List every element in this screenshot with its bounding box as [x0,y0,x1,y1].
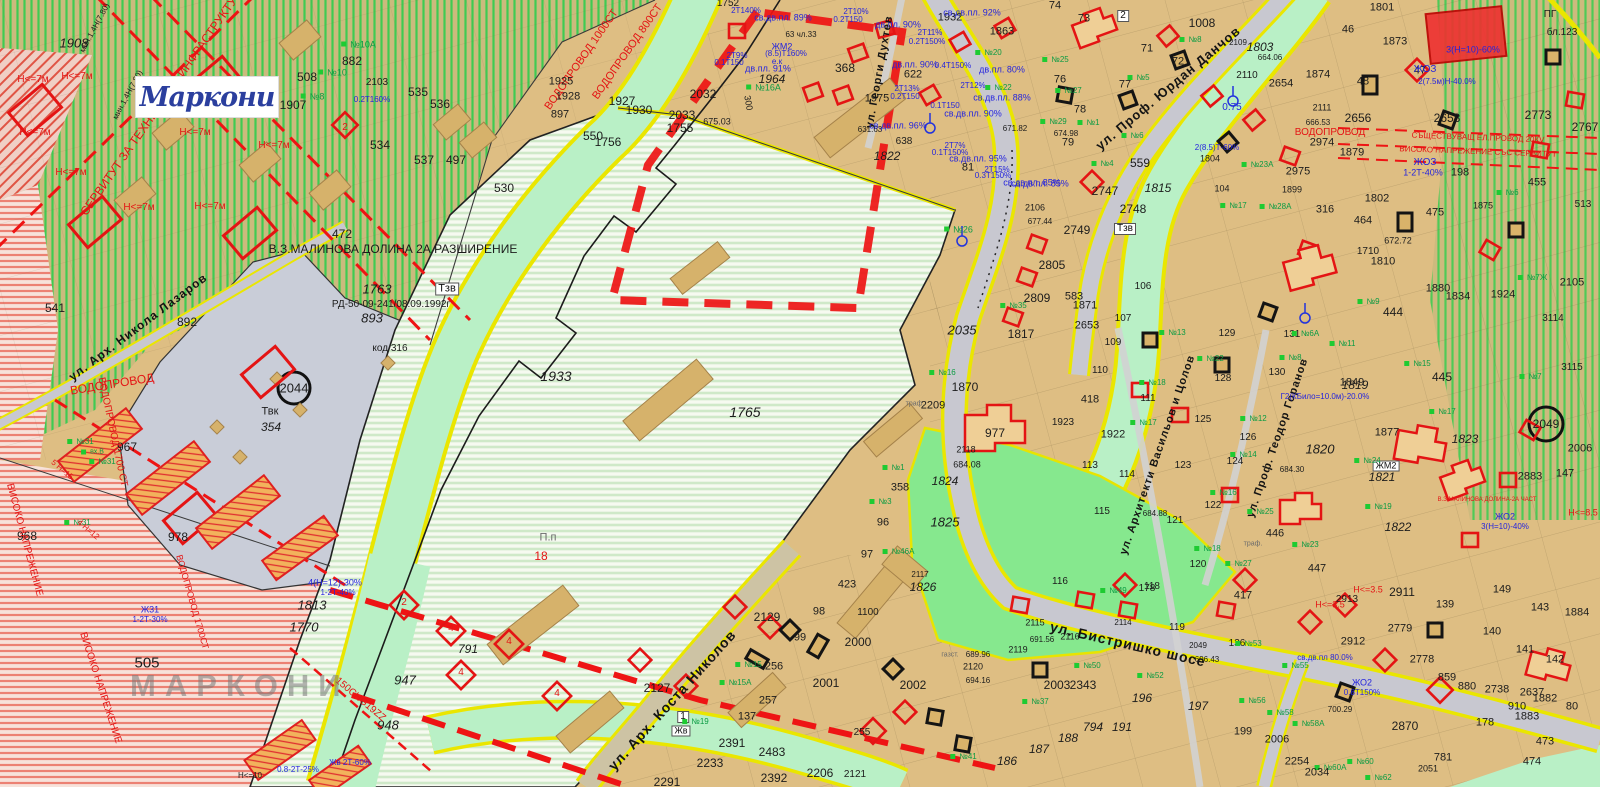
brand-logo-text: Маркони [140,82,275,113]
map-viewport[interactable]: 1908Н<=7мН<=7мН<=7мН<=7мН<=7мН<=7мН<=7мН… [0,0,1600,787]
brand-logo: Маркони [136,77,278,117]
brand-watermark: МАРКОНИ [130,668,350,704]
